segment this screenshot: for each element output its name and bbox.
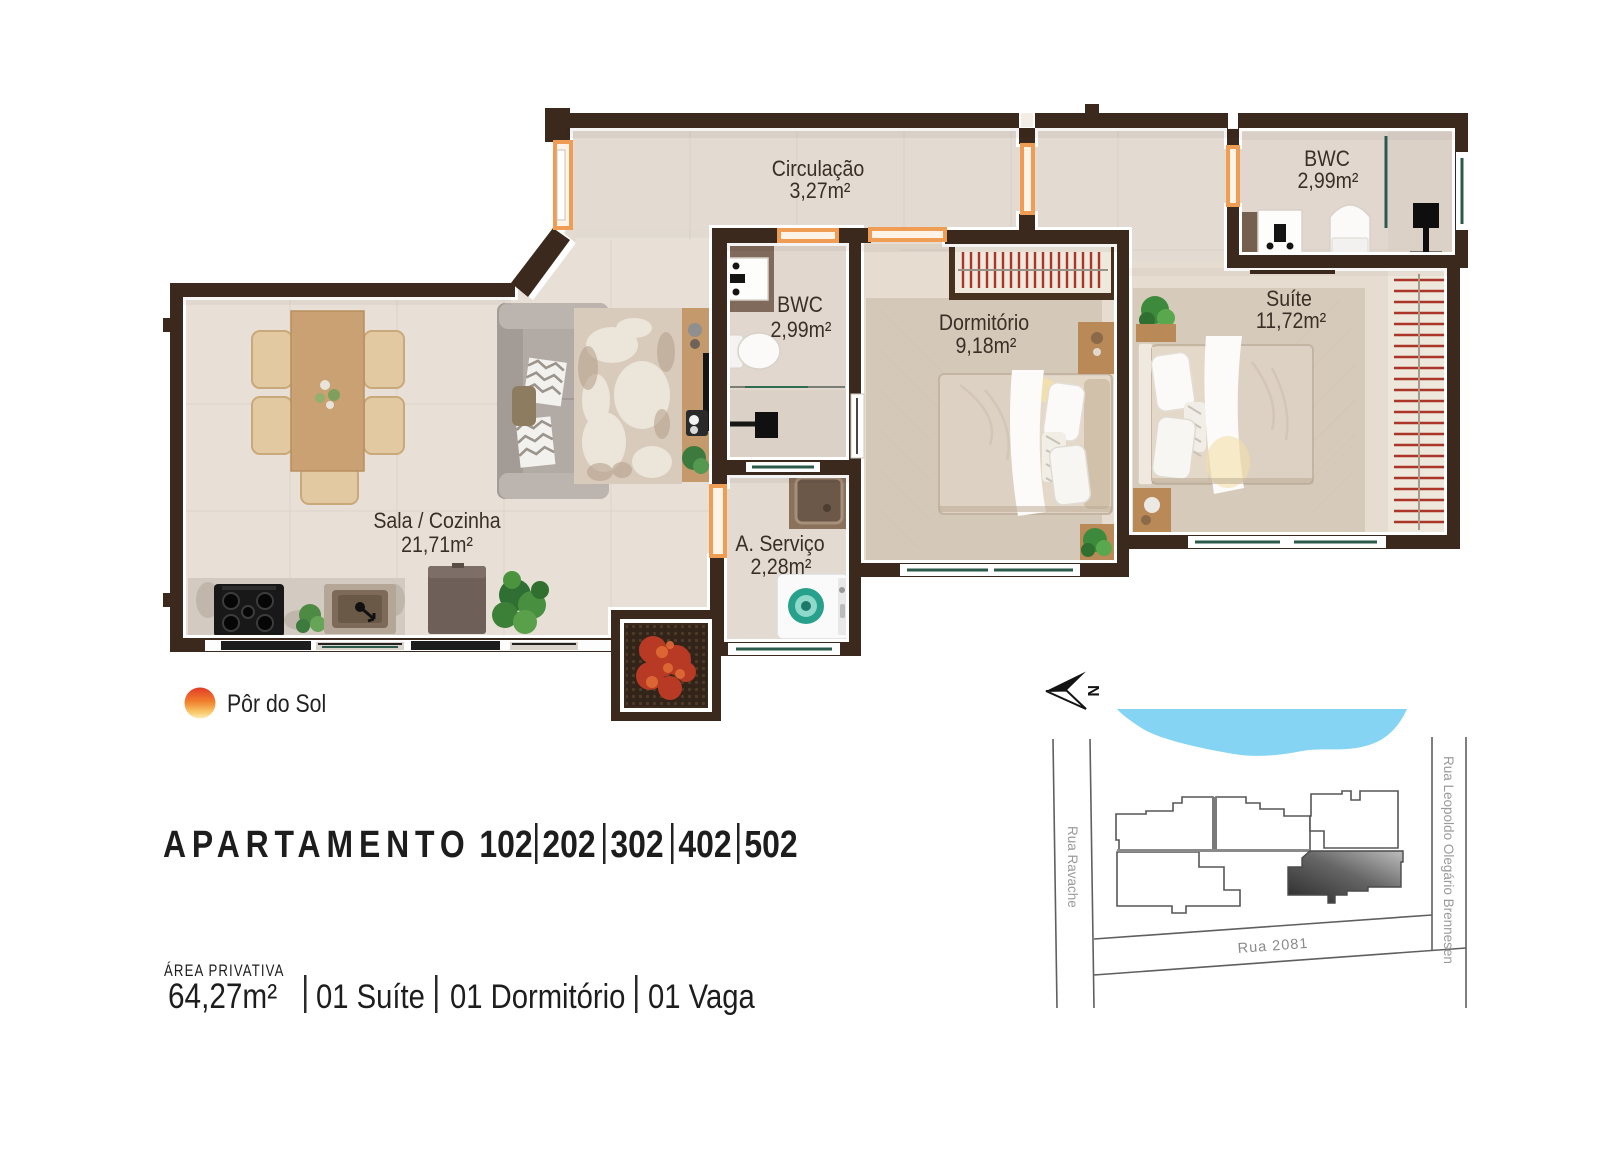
svg-text:APARTAMENTO: APARTAMENTO	[163, 823, 471, 865]
svg-text:2,28m²: 2,28m²	[751, 555, 812, 579]
svg-text:9,18m²: 9,18m²	[956, 334, 1017, 358]
svg-text:3,27m²: 3,27m²	[790, 179, 851, 203]
svg-text:Rua Leopoldo Olegário Brennese: Rua Leopoldo Olegário Brennesen	[1441, 756, 1456, 964]
svg-text:01 Dormitório: 01 Dormitório	[450, 977, 625, 1016]
svg-text:Sala / Cozinha: Sala / Cozinha	[373, 509, 501, 533]
svg-text:302: 302	[610, 823, 663, 865]
svg-text:202: 202	[542, 823, 595, 865]
svg-text:01 Suíte: 01 Suíte	[316, 977, 425, 1016]
svg-text:Rua Ravache: Rua Ravache	[1065, 826, 1080, 908]
svg-text:502: 502	[744, 823, 797, 865]
svg-text:BWC: BWC	[777, 293, 823, 317]
svg-text:64,27m²: 64,27m²	[168, 977, 277, 1016]
svg-text:Circulação: Circulação	[772, 157, 864, 181]
svg-text:102: 102	[479, 823, 532, 865]
svg-text:2,99m²: 2,99m²	[1298, 169, 1359, 193]
svg-text:21,71m²: 21,71m²	[401, 533, 473, 557]
svg-text:01 Vaga: 01 Vaga	[648, 977, 755, 1016]
svg-text:Dormitório: Dormitório	[939, 311, 1029, 335]
svg-text:2,99m²: 2,99m²	[771, 318, 832, 342]
svg-text:N: N	[1084, 685, 1101, 697]
svg-text:11,72m²: 11,72m²	[1256, 309, 1326, 333]
svg-text:BWC: BWC	[1304, 147, 1350, 171]
svg-text:Suíte: Suíte	[1266, 287, 1312, 311]
svg-text:Pôr do Sol: Pôr do Sol	[227, 689, 326, 717]
svg-text:402: 402	[678, 823, 731, 865]
svg-text:A. Serviço: A. Serviço	[735, 532, 824, 556]
